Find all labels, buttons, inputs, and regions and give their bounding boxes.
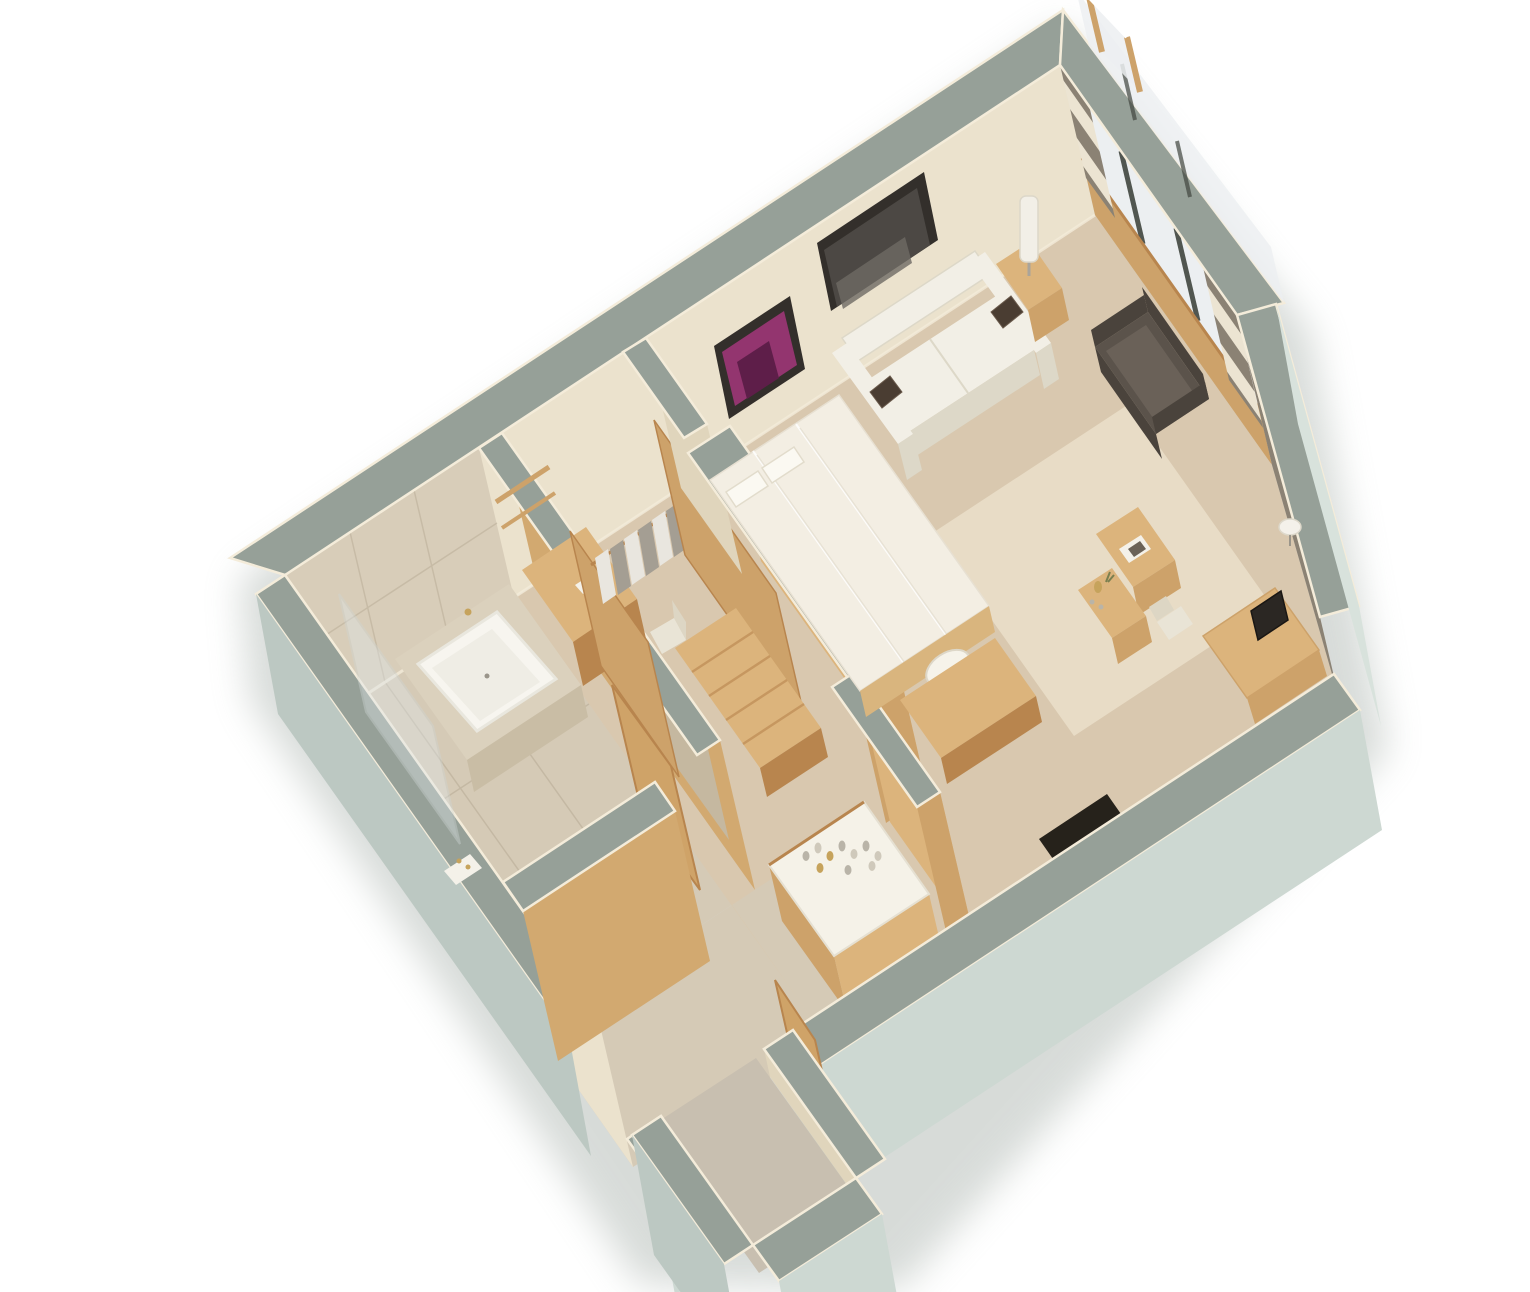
glass-cup (845, 865, 852, 875)
bottle (875, 851, 882, 861)
glass-cup (869, 861, 876, 871)
bottle (827, 851, 834, 861)
decor-vase (1094, 581, 1102, 593)
bottle (815, 843, 822, 854)
floorplan-3d-render: 3D Floor Plan — Studio Apartment Render (0, 0, 1530, 1292)
cup (1090, 600, 1095, 605)
bottle (851, 849, 858, 859)
floorplan-page: 3D Floor Plan — Studio Apartment Render (0, 0, 1530, 1292)
bathtub-faucet-gold (465, 609, 472, 616)
column-lamp (1020, 196, 1038, 262)
glass-cup (817, 863, 824, 873)
bottle (839, 841, 846, 852)
bottle (863, 841, 870, 852)
cup (1099, 605, 1104, 610)
gold-toiletry-bottle (457, 859, 462, 864)
gold-toiletry-bottle (466, 865, 471, 870)
bottle (803, 851, 810, 861)
bathtub-drain (485, 674, 490, 679)
sphere-lamp (1279, 519, 1301, 535)
